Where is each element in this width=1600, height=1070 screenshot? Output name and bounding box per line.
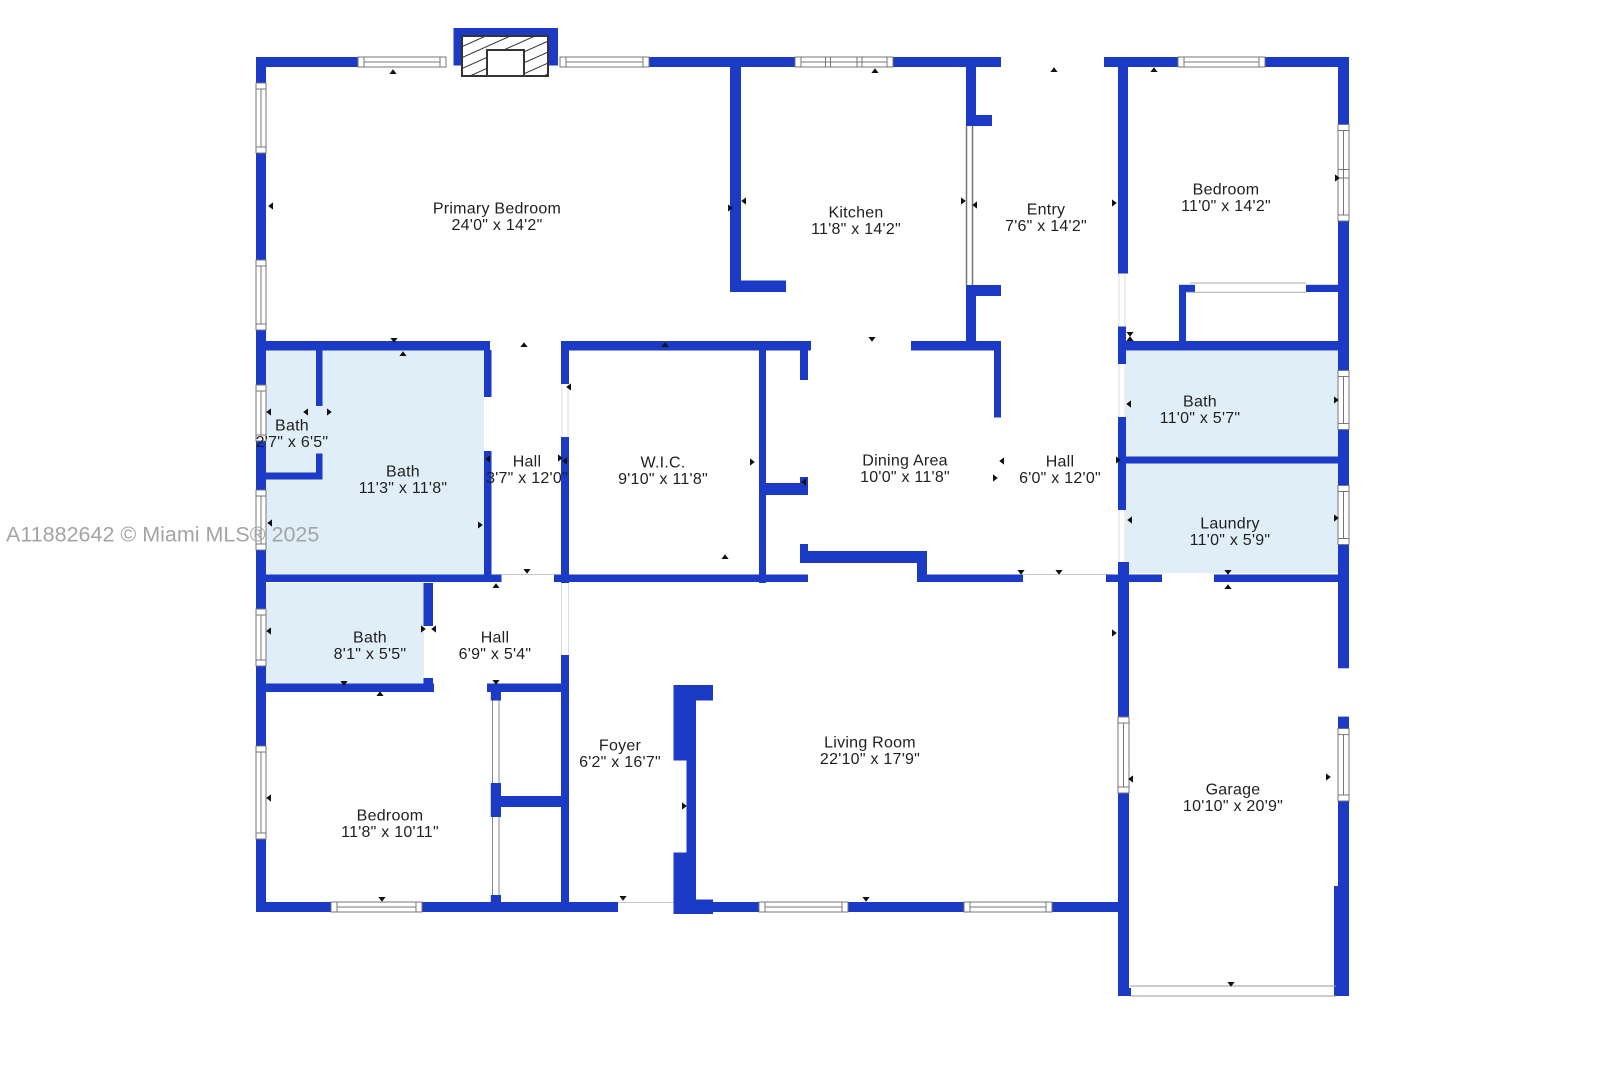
svg-text:Foyer: Foyer [599, 738, 642, 755]
svg-text:Bedroom: Bedroom [357, 808, 424, 825]
svg-text:6'9" x 5'4": 6'9" x 5'4" [459, 646, 532, 663]
svg-text:Hall: Hall [513, 454, 542, 471]
svg-text:9'10" x 11'8": 9'10" x 11'8" [618, 471, 708, 488]
svg-text:6'2" x 16'7": 6'2" x 16'7" [579, 754, 661, 771]
svg-text:11'0" x 5'9": 11'0" x 5'9" [1190, 532, 1271, 549]
svg-text:11'8" x 14'2": 11'8" x 14'2" [811, 221, 901, 238]
svg-text:11'0" x 5'7": 11'0" x 5'7" [1160, 410, 1241, 427]
svg-text:Bath: Bath [275, 418, 309, 435]
svg-text:2'7" x 6'5": 2'7" x 6'5" [256, 434, 329, 451]
svg-text:Bath: Bath [353, 630, 387, 647]
svg-text:11'0" x 14'2": 11'0" x 14'2" [1181, 198, 1271, 215]
svg-text:Hall: Hall [481, 630, 510, 647]
svg-text:Bedroom: Bedroom [1193, 182, 1260, 199]
svg-text:3'7" x 12'0": 3'7" x 12'0" [486, 470, 568, 487]
svg-text:6'0" x 12'0": 6'0" x 12'0" [1019, 470, 1101, 487]
svg-text:10'0" x 11'8": 10'0" x 11'8" [860, 469, 950, 486]
svg-text:24'0" x 14'2": 24'0" x 14'2" [452, 217, 543, 234]
svg-text:Hall: Hall [1046, 454, 1075, 471]
svg-text:Bath: Bath [1183, 394, 1217, 411]
svg-text:11'8" x 10'11": 11'8" x 10'11" [341, 824, 439, 841]
svg-text:11'3" x 11'8": 11'3" x 11'8" [359, 480, 448, 497]
svg-text:10'10" x 20'9": 10'10" x 20'9" [1183, 798, 1283, 815]
svg-text:22'10" x 17'9": 22'10" x 17'9" [820, 751, 920, 768]
svg-text:A11882642 © Miami MLS® 2025: A11882642 © Miami MLS® 2025 [6, 523, 319, 547]
svg-text:Living Room: Living Room [824, 735, 916, 752]
svg-text:Kitchen: Kitchen [828, 205, 883, 222]
svg-text:Laundry: Laundry [1200, 516, 1260, 533]
svg-text:8'1" x 5'5": 8'1" x 5'5" [334, 646, 407, 663]
svg-text:Bath: Bath [386, 464, 420, 481]
svg-text:Primary Bedroom: Primary Bedroom [433, 201, 561, 218]
svg-text:Dining Area: Dining Area [862, 453, 947, 470]
svg-text:Garage: Garage [1206, 782, 1261, 799]
svg-text:7'6" x 14'2": 7'6" x 14'2" [1005, 218, 1087, 235]
svg-text:W.I.C.: W.I.C. [640, 455, 685, 472]
svg-text:Entry: Entry [1027, 202, 1066, 219]
